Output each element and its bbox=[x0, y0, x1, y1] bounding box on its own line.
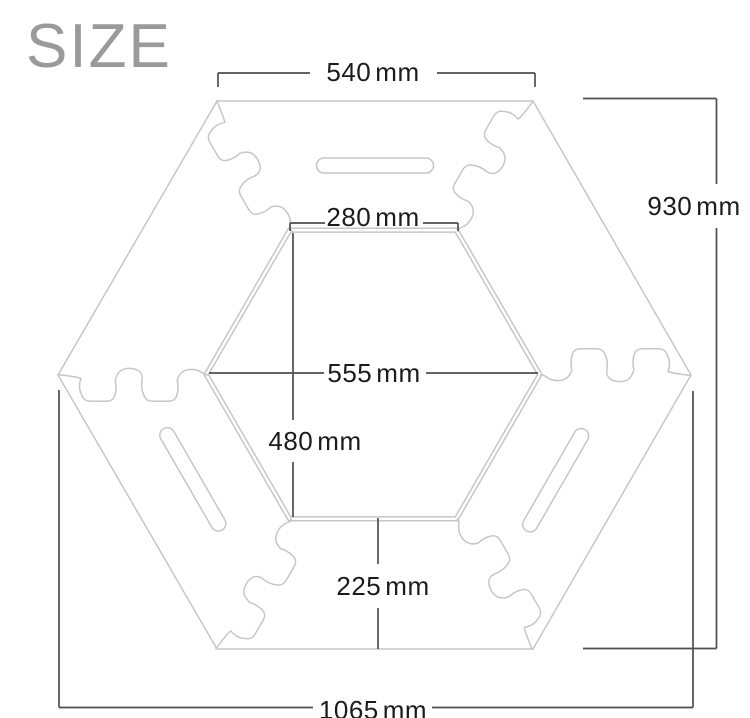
dim-280-line bbox=[290, 223, 458, 231]
hexagon-table-diagram: 540mm 930mm 280mm 555mm 480mm 225mm 1065… bbox=[0, 0, 750, 718]
jigsaw-joint bbox=[435, 88, 539, 235]
dim-930-line bbox=[583, 99, 717, 649]
outer-hexagon bbox=[58, 101, 691, 649]
handle-slot bbox=[317, 158, 434, 173]
jigsaw-joint bbox=[452, 506, 556, 653]
dim-480-label: 480mm bbox=[268, 426, 361, 456]
dim-555-label: 555mm bbox=[327, 358, 420, 388]
handle-slot bbox=[520, 426, 591, 535]
jigsaw-joint bbox=[210, 515, 314, 662]
dim-1065-label: 1065mm bbox=[319, 695, 427, 718]
inner-hexagon-edge bbox=[209, 232, 538, 517]
dim-1065-line bbox=[59, 390, 693, 708]
dim-540-label: 540mm bbox=[326, 57, 419, 87]
size-diagram-page: SIZE bbox=[0, 0, 750, 718]
handle-slot bbox=[157, 425, 228, 534]
jigsaw-joint bbox=[541, 349, 692, 382]
dim-225-label: 225mm bbox=[336, 571, 429, 601]
inner-hexagon-edge-outer bbox=[204, 228, 542, 521]
dimension-lines bbox=[59, 73, 717, 708]
jigsaw-joint bbox=[194, 98, 298, 245]
jigsaw-joint bbox=[58, 368, 209, 401]
dim-930-label: 930mm bbox=[647, 191, 740, 221]
